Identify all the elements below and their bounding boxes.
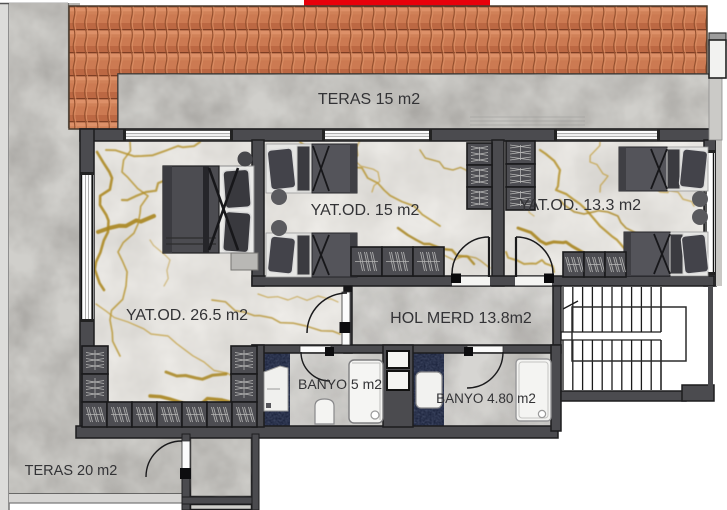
svg-text:BANYO 5 m2: BANYO 5 m2 xyxy=(298,376,382,392)
svg-text:YAT.OD. 26.5 m2: YAT.OD. 26.5 m2 xyxy=(126,307,248,324)
svg-text:HOL MERD 13.8m2: HOL MERD 13.8m2 xyxy=(390,310,532,327)
svg-text:TERAS 20 m2: TERAS 20 m2 xyxy=(25,463,118,479)
svg-text:TERAS 15 m2: TERAS 15 m2 xyxy=(318,91,420,108)
svg-text:YAT.OD. 13.3 m2: YAT.OD. 13.3 m2 xyxy=(519,197,641,214)
svg-text:BANYO 4.80 m2: BANYO 4.80 m2 xyxy=(436,391,536,406)
svg-text:YAT.OD. 15 m2: YAT.OD. 15 m2 xyxy=(311,202,420,219)
